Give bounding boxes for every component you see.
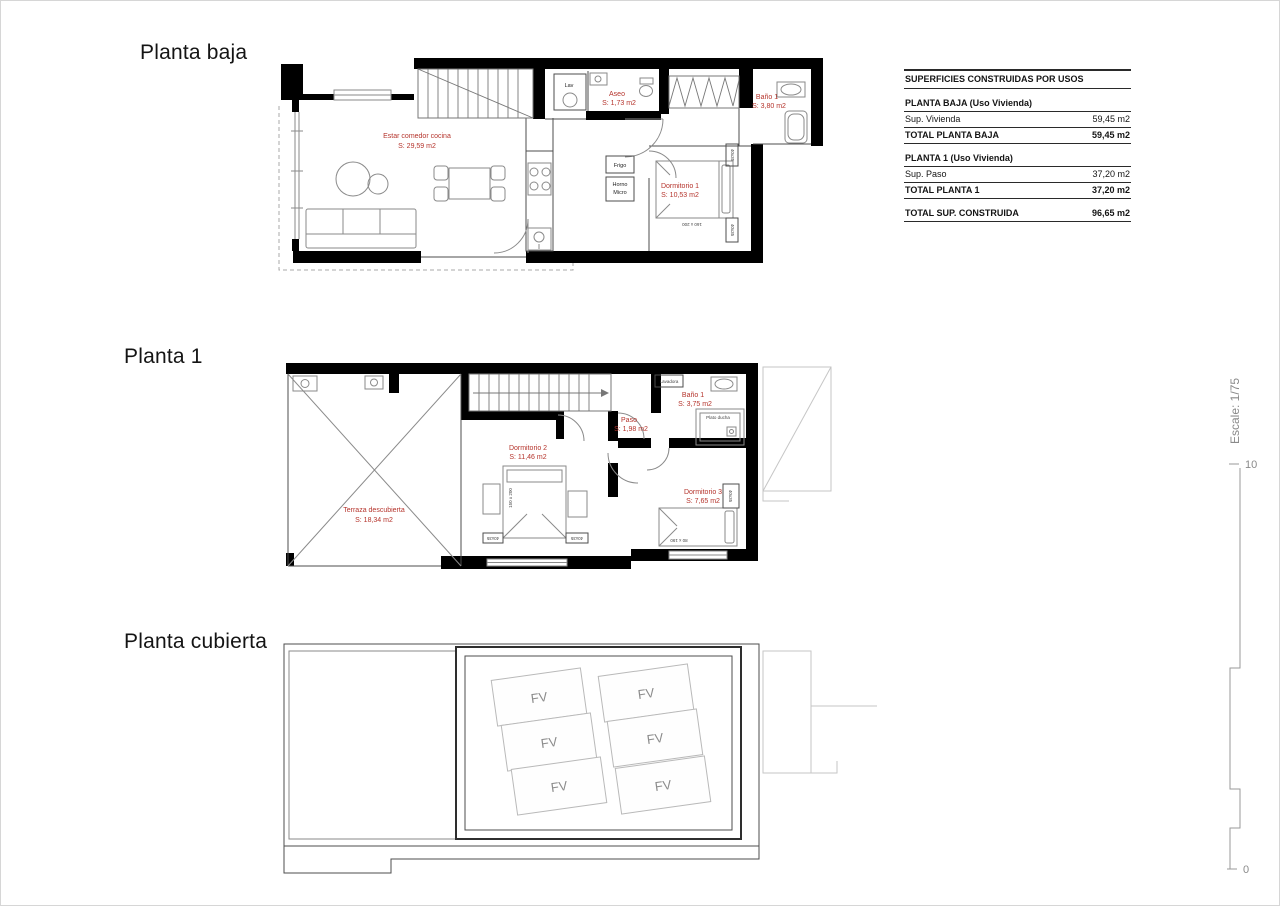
walls [281,58,823,263]
room-area-dormitorio1: S: 10,53 m2 [661,192,699,199]
room-label-dormitorio3: Dormitorio 3 [684,489,722,496]
room-label-estar: Estar comedor cocina [383,133,451,140]
closet-size-label: 40x35 [730,149,735,162]
row-value: 96,65 m2 [1092,208,1130,218]
closet-size-label: 40x35 [728,490,733,503]
row-value: 37,20 m2 [1092,185,1130,195]
row-value: 59,45 m2 [1092,130,1130,140]
areas-table: SUPERFICIES CONSTRUIDAS POR USOS PLANTA … [904,69,1131,222]
room-area-bano1: S: 3,80 m2 [752,103,786,110]
room-label-paso: Paso [621,417,637,424]
stair-hatch-symbol [669,76,739,108]
sofa-symbol [306,209,416,248]
room-label-bano1: Baño 1 [756,94,778,101]
fv-label: FV [530,689,549,706]
room-area-dormitorio2: S: 11,46 m2 [509,454,546,461]
kitchen-symbols [526,151,553,251]
stairs-symbol [418,69,533,118]
door-arc [494,219,528,253]
neighbor-outline [763,651,877,773]
bed-size-label: 160 x 200 [682,222,702,227]
porch-dashed-outline [279,106,573,270]
stairs-symbol [469,374,611,411]
lavadora-label: Lavadora [660,379,679,384]
closet-size-label: 40x35 [570,536,583,541]
terrace-symbol [288,374,461,566]
row-label: Sup. Vivienda [905,114,960,124]
section-header: PLANTA 1 (Uso Vivienda) [904,150,1131,167]
row-label: TOTAL PLANTA 1 [905,185,980,195]
table-row: TOTAL SUP. CONSTRUIDA 96,65 m2 [904,206,1131,222]
room-area-terraza: S: 18,34 m2 [355,517,393,524]
closet-size-label: 40x35 [486,536,499,541]
micro-label: Micro [613,190,626,196]
table-row: Sup. Vivienda 59,45 m2 [904,112,1131,128]
fv-label: FV [654,777,673,794]
table-row: TOTAL PLANTA BAJA 59,45 m2 [904,128,1131,144]
fv-label: FV [540,734,559,751]
bed-symbol: 80 x 190 [659,508,737,546]
appliance-boxes: Frigo Horno Micro [606,156,634,201]
round-table-symbol [336,162,388,196]
areas-table-total: TOTAL SUP. CONSTRUIDA 96,65 m2 [904,206,1131,222]
planta-cubierta-roofplan: FV FV FV FV FV FV [277,636,897,884]
laundry-closet: Lav [554,74,586,110]
room-label-dormitorio2: Dormitorio 2 [509,445,547,452]
shower-tray-label: Plato ducha [706,415,730,420]
planta-1-floorplan: 150 x 200 40x35 40x35 Lavadora Plato duc… [277,353,847,585]
planta-baja-floorplan: Lav Frigo Horno [277,56,829,274]
room-area-paso: S: 1,98 m2 [614,426,648,433]
title-planta-1: Planta 1 [124,345,203,369]
scale-bar: Escale: 1/75 10 0 [1213,331,1280,891]
row-label: TOTAL PLANTA BAJA [905,130,999,140]
scale-top-value: 10 [1245,459,1257,471]
scale-label: Escale: 1/75 [1228,378,1242,444]
table-row: Sup. Paso 37,20 m2 [904,167,1131,183]
closet-symbol: 40x35 40x35 [726,144,738,242]
bathroom-fixtures [777,82,807,143]
areas-table-title: SUPERFICIES CONSTRUIDAS POR USOS [904,69,1131,89]
row-label: TOTAL SUP. CONSTRUIDA [905,208,1019,218]
section-header: PLANTA BAJA (Uso Vivienda) [904,95,1131,112]
room-area-bano1-p1: S: 3,75 m2 [678,401,712,408]
room-label-dormitorio1: Dormitorio 1 [661,183,699,190]
table-row: TOTAL PLANTA 1 37,20 m2 [904,183,1131,199]
bed-size-label: 80 x 190 [670,538,688,543]
fv-label: FV [550,778,569,795]
fv-label: FV [637,685,656,702]
scale-bottom-value: 0 [1243,864,1249,876]
bed-size-label: 150 x 200 [508,488,513,508]
room-label-aseo: Aseo [609,91,625,98]
areas-table-section-planta-baja: PLANTA BAJA (Uso Vivienda) Sup. Vivienda… [904,95,1131,144]
room-area-aseo: S: 1,73 m2 [602,100,636,107]
bathroom-fixtures: Lavadora Plato ducha [655,375,744,445]
room-label-terraza: Terraza descubierta [343,507,405,514]
lav-label: Lav [565,83,574,89]
row-value: 59,45 m2 [1092,114,1130,124]
title-planta-cubierta: Planta cubierta [124,630,267,654]
areas-table-section-planta-1: PLANTA 1 (Uso Vivienda) Sup. Paso 37,20 … [904,150,1131,199]
dining-table-symbol [434,166,505,201]
closet-symbol: 40x35 [723,484,739,508]
room-label-bano1-p1: Baño 1 [682,392,704,399]
floorplan-sheet: Planta baja Planta 1 Planta cubierta SUP… [0,0,1280,906]
closet-size-label: 40x35 [730,224,735,237]
door-arc [649,151,676,178]
horno-label: Horno [613,182,628,188]
title-planta-baja: Planta baja [140,41,247,65]
frigo-label: Frigo [614,163,627,169]
fv-label: FV [646,730,665,747]
row-label: Sup. Paso [905,169,947,179]
room-area-dormitorio3: S: 7,65 m2 [686,498,720,505]
neighbor-outline [763,367,831,501]
row-value: 37,20 m2 [1092,169,1130,179]
bed-symbol: 150 x 200 [483,466,587,538]
room-area-estar: S: 29,59 m2 [398,143,436,150]
